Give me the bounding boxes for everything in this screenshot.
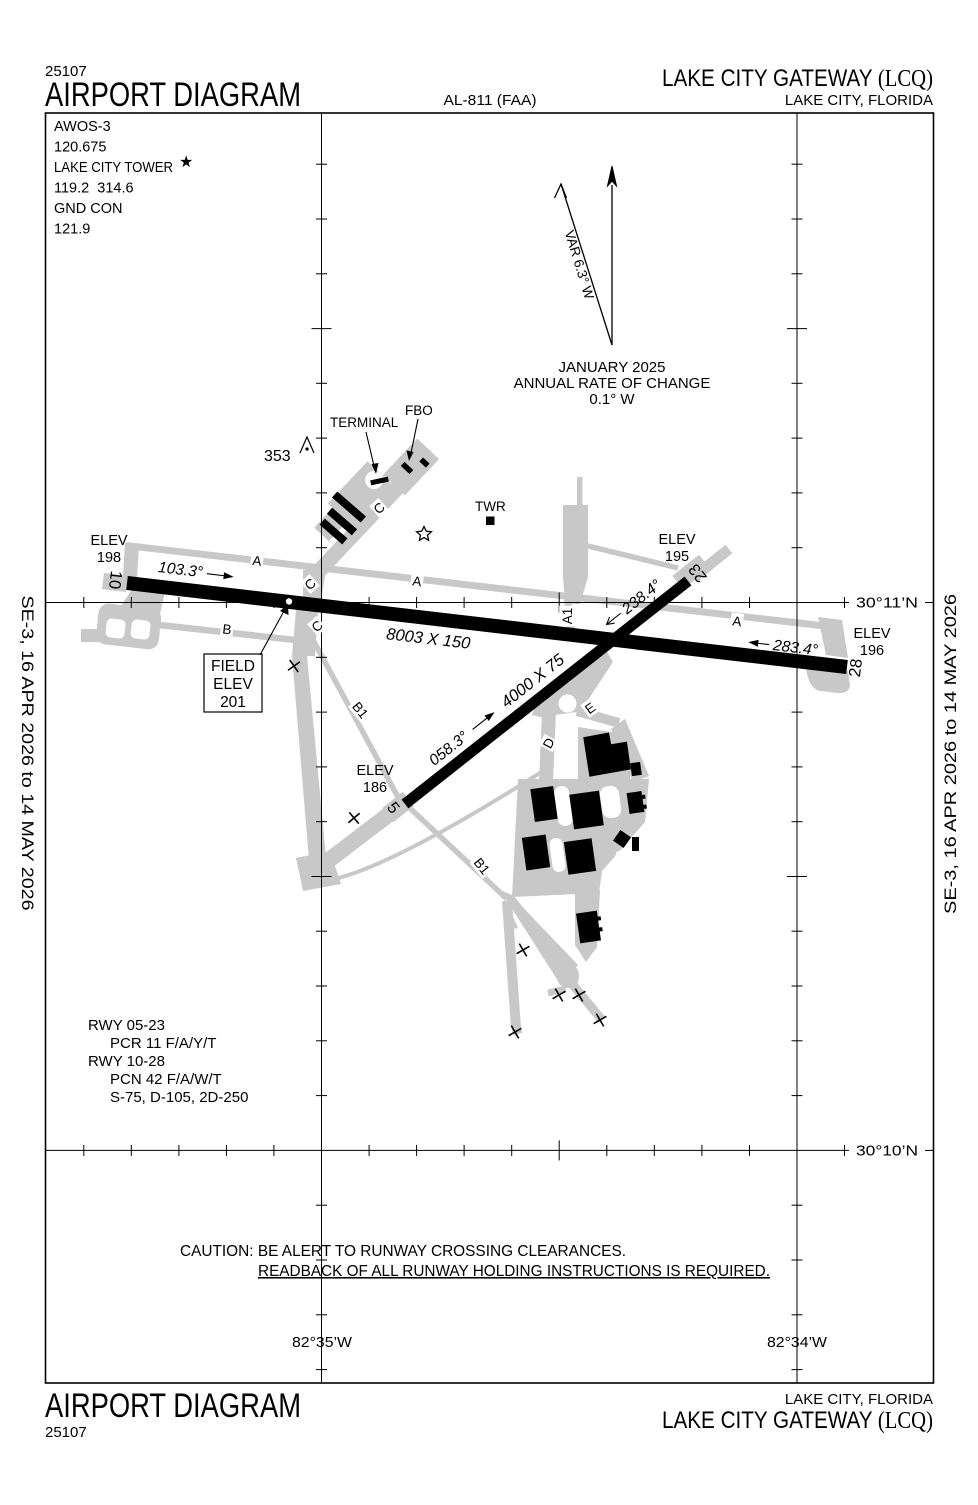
- svg-text:ANNUAL RATE OF CHANGE: ANNUAL RATE OF CHANGE: [514, 375, 711, 392]
- svg-text:LAKE CITY, FLORIDA: LAKE CITY, FLORIDA: [785, 92, 933, 109]
- svg-text:PCN 42 F/A/W/T: PCN 42 F/A/W/T: [110, 1071, 222, 1088]
- svg-text:119.2 314.6: 119.2 314.6: [54, 181, 134, 197]
- svg-text:★: ★: [179, 154, 193, 171]
- svg-text:A1: A1: [560, 608, 575, 625]
- svg-text:ELEV: ELEV: [356, 763, 393, 779]
- svg-text:AIRPORT DIAGRAM: AIRPORT DIAGRAM: [45, 1387, 301, 1425]
- svg-text:201: 201: [220, 694, 246, 711]
- svg-text:A: A: [412, 573, 423, 589]
- svg-text:30°10’N: 30°10’N: [856, 1142, 918, 1159]
- svg-text:READBACK OF ALL RUNWAY HOLDING: READBACK OF ALL RUNWAY HOLDING INSTRUCTI…: [258, 1263, 770, 1280]
- svg-text:LAKE CITY GATEWAY (LCQ): LAKE CITY GATEWAY (LCQ): [662, 1407, 933, 1434]
- svg-text:82°35’W: 82°35’W: [292, 1334, 353, 1351]
- svg-text:GND CON: GND CON: [54, 201, 122, 217]
- svg-text:30°11’N: 30°11’N: [856, 595, 918, 612]
- svg-text:25107: 25107: [45, 1424, 87, 1441]
- svg-text:A: A: [252, 553, 263, 569]
- svg-text:LAKE CITY TOWER: LAKE CITY TOWER: [54, 160, 173, 176]
- svg-text:CAUTION: BE ALERT TO RUNWAY CR: CAUTION: BE ALERT TO RUNWAY CROSSING CLE…: [180, 1243, 626, 1260]
- svg-text:FBO: FBO: [405, 403, 433, 418]
- svg-text:ELEV: ELEV: [853, 626, 890, 642]
- svg-text:120.675: 120.675: [54, 140, 106, 156]
- svg-text:196: 196: [860, 643, 884, 659]
- svg-text:ELEV: ELEV: [213, 676, 253, 693]
- svg-text:LAKE CITY, FLORIDA: LAKE CITY, FLORIDA: [785, 1391, 933, 1408]
- svg-text:ELEV: ELEV: [90, 533, 127, 549]
- svg-text:10: 10: [105, 570, 125, 590]
- svg-text:198: 198: [97, 550, 121, 566]
- svg-text:JANUARY 2025: JANUARY 2025: [558, 359, 665, 376]
- svg-text:121.9: 121.9: [54, 222, 90, 238]
- svg-text:AIRPORT DIAGRAM: AIRPORT DIAGRAM: [45, 76, 301, 114]
- svg-text:195: 195: [665, 549, 689, 565]
- svg-text:353: 353: [264, 448, 291, 465]
- svg-text:PCR 11 F/A/Y/T: PCR 11 F/A/Y/T: [110, 1035, 216, 1052]
- svg-text:0.1° W: 0.1° W: [589, 391, 635, 408]
- svg-text:S-75, D-105, 2D-250: S-75, D-105, 2D-250: [110, 1089, 248, 1106]
- svg-text:SE-3, 16 APR 2026 to 14 MAY 20: SE-3, 16 APR 2026 to 14 MAY 2026: [941, 594, 960, 914]
- svg-text:B: B: [222, 621, 233, 637]
- svg-text:28: 28: [846, 658, 866, 678]
- svg-text:ELEV: ELEV: [658, 532, 695, 548]
- svg-text:RWY 05-23: RWY 05-23: [88, 1017, 165, 1034]
- svg-text:FIELD: FIELD: [211, 658, 255, 675]
- svg-text:TERMINAL: TERMINAL: [330, 415, 399, 430]
- svg-text:SE-3, 16 APR 2026 to 14 MAY 20: SE-3, 16 APR 2026 to 14 MAY 2026: [18, 596, 37, 911]
- svg-text:LAKE CITY GATEWAY (LCQ): LAKE CITY GATEWAY (LCQ): [662, 65, 933, 92]
- svg-text:82°34’W: 82°34’W: [767, 1334, 828, 1351]
- svg-text:RWY 10-28: RWY 10-28: [88, 1053, 165, 1070]
- svg-text:TWR: TWR: [475, 499, 506, 514]
- svg-text:AL-811 (FAA): AL-811 (FAA): [444, 92, 537, 109]
- svg-text:A: A: [732, 613, 743, 629]
- svg-text:186: 186: [363, 780, 387, 796]
- svg-text:AWOS-3: AWOS-3: [54, 119, 111, 135]
